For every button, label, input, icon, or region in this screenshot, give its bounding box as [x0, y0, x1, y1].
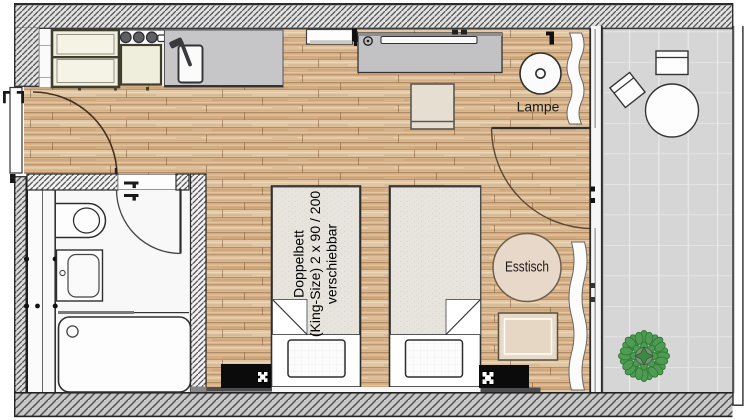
- svg-text:Esstisch: Esstisch: [505, 259, 549, 276]
- svg-text:Lampe: Lampe: [517, 99, 560, 115]
- svg-text:Doppelbett: Doppelbett: [291, 230, 307, 298]
- svg-text:verschiebbar: verschiebbar: [324, 224, 340, 304]
- svg-text:(King-Size) 2 x 90 / 200: (King-Size) 2 x 90 / 200: [307, 191, 323, 338]
